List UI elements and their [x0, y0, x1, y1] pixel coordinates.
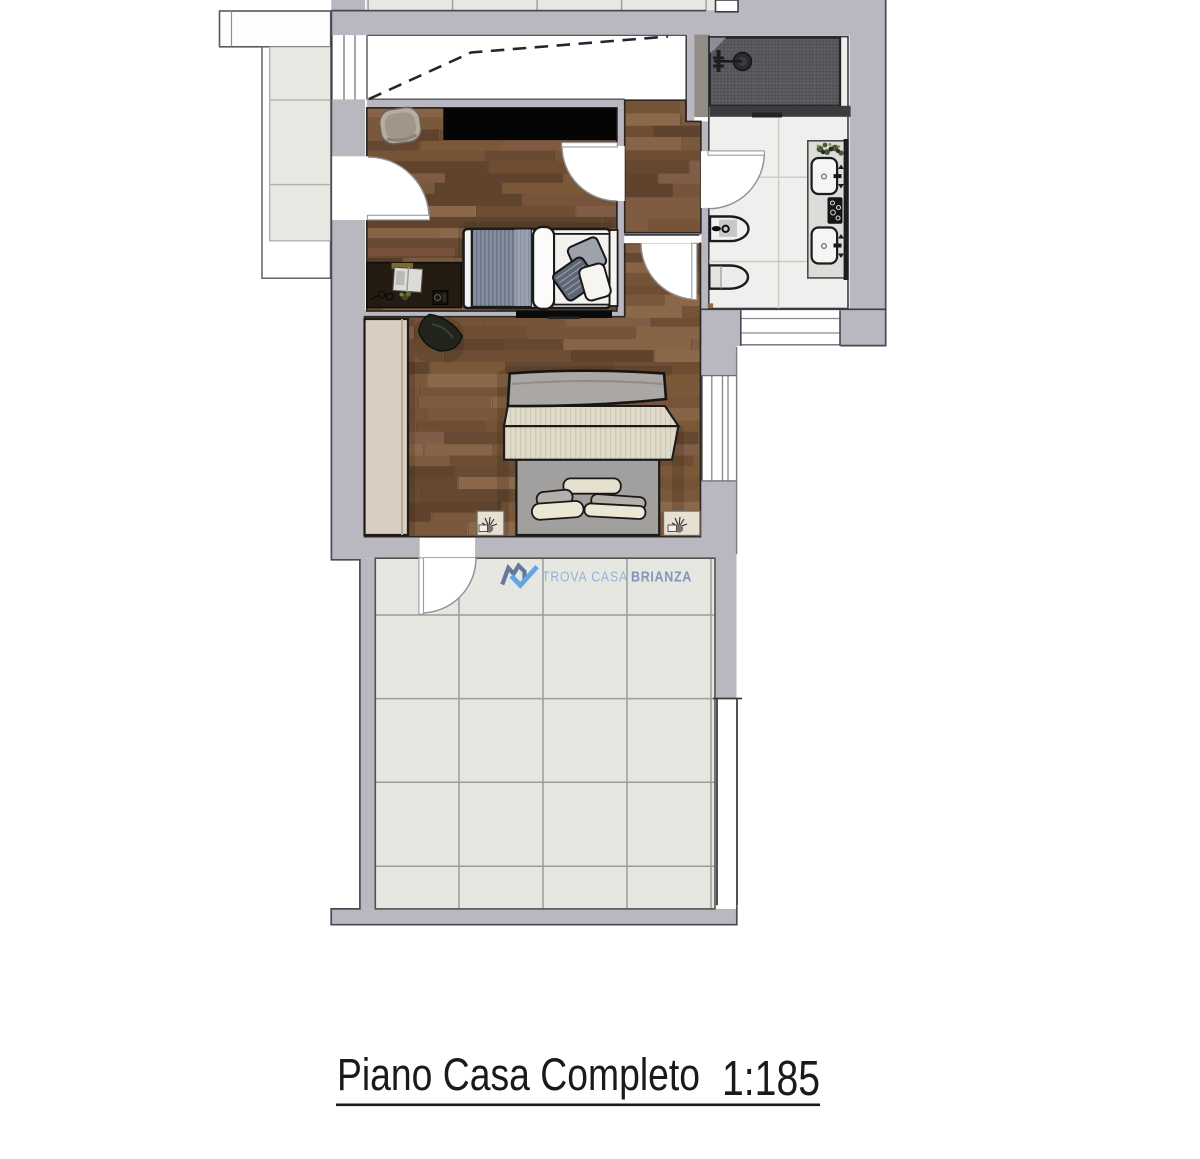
svg-text:BRIANZA: BRIANZA — [631, 569, 692, 586]
svg-text:Piano Casa Completo: Piano Casa Completo — [337, 1049, 700, 1100]
svg-text:TROVA CASA: TROVA CASA — [542, 569, 628, 586]
svg-text:1:185: 1:185 — [722, 1052, 820, 1106]
